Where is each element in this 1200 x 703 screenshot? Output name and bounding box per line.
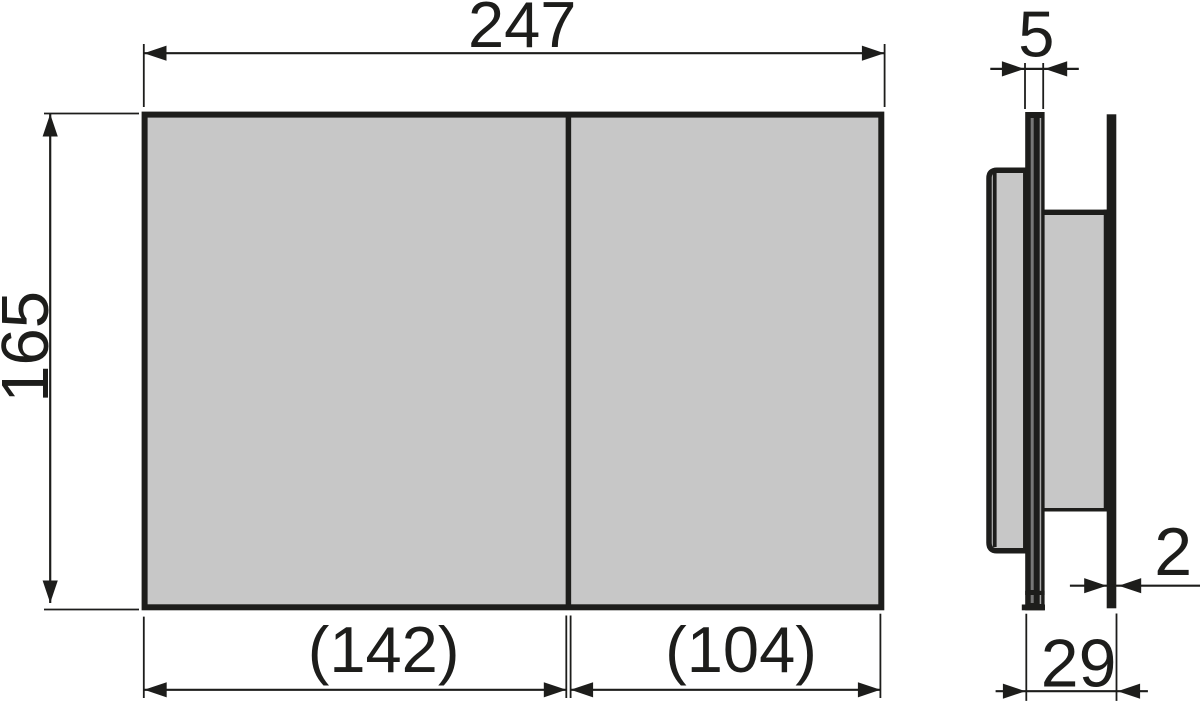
svg-text:(104): (104) [665,613,817,686]
svg-text:247: 247 [468,0,576,61]
svg-text:5: 5 [1018,0,1054,71]
svg-text:165: 165 [0,291,63,403]
svg-text:2: 2 [1154,514,1192,590]
svg-text:(142): (142) [308,613,460,686]
svg-text:29: 29 [1041,625,1117,701]
